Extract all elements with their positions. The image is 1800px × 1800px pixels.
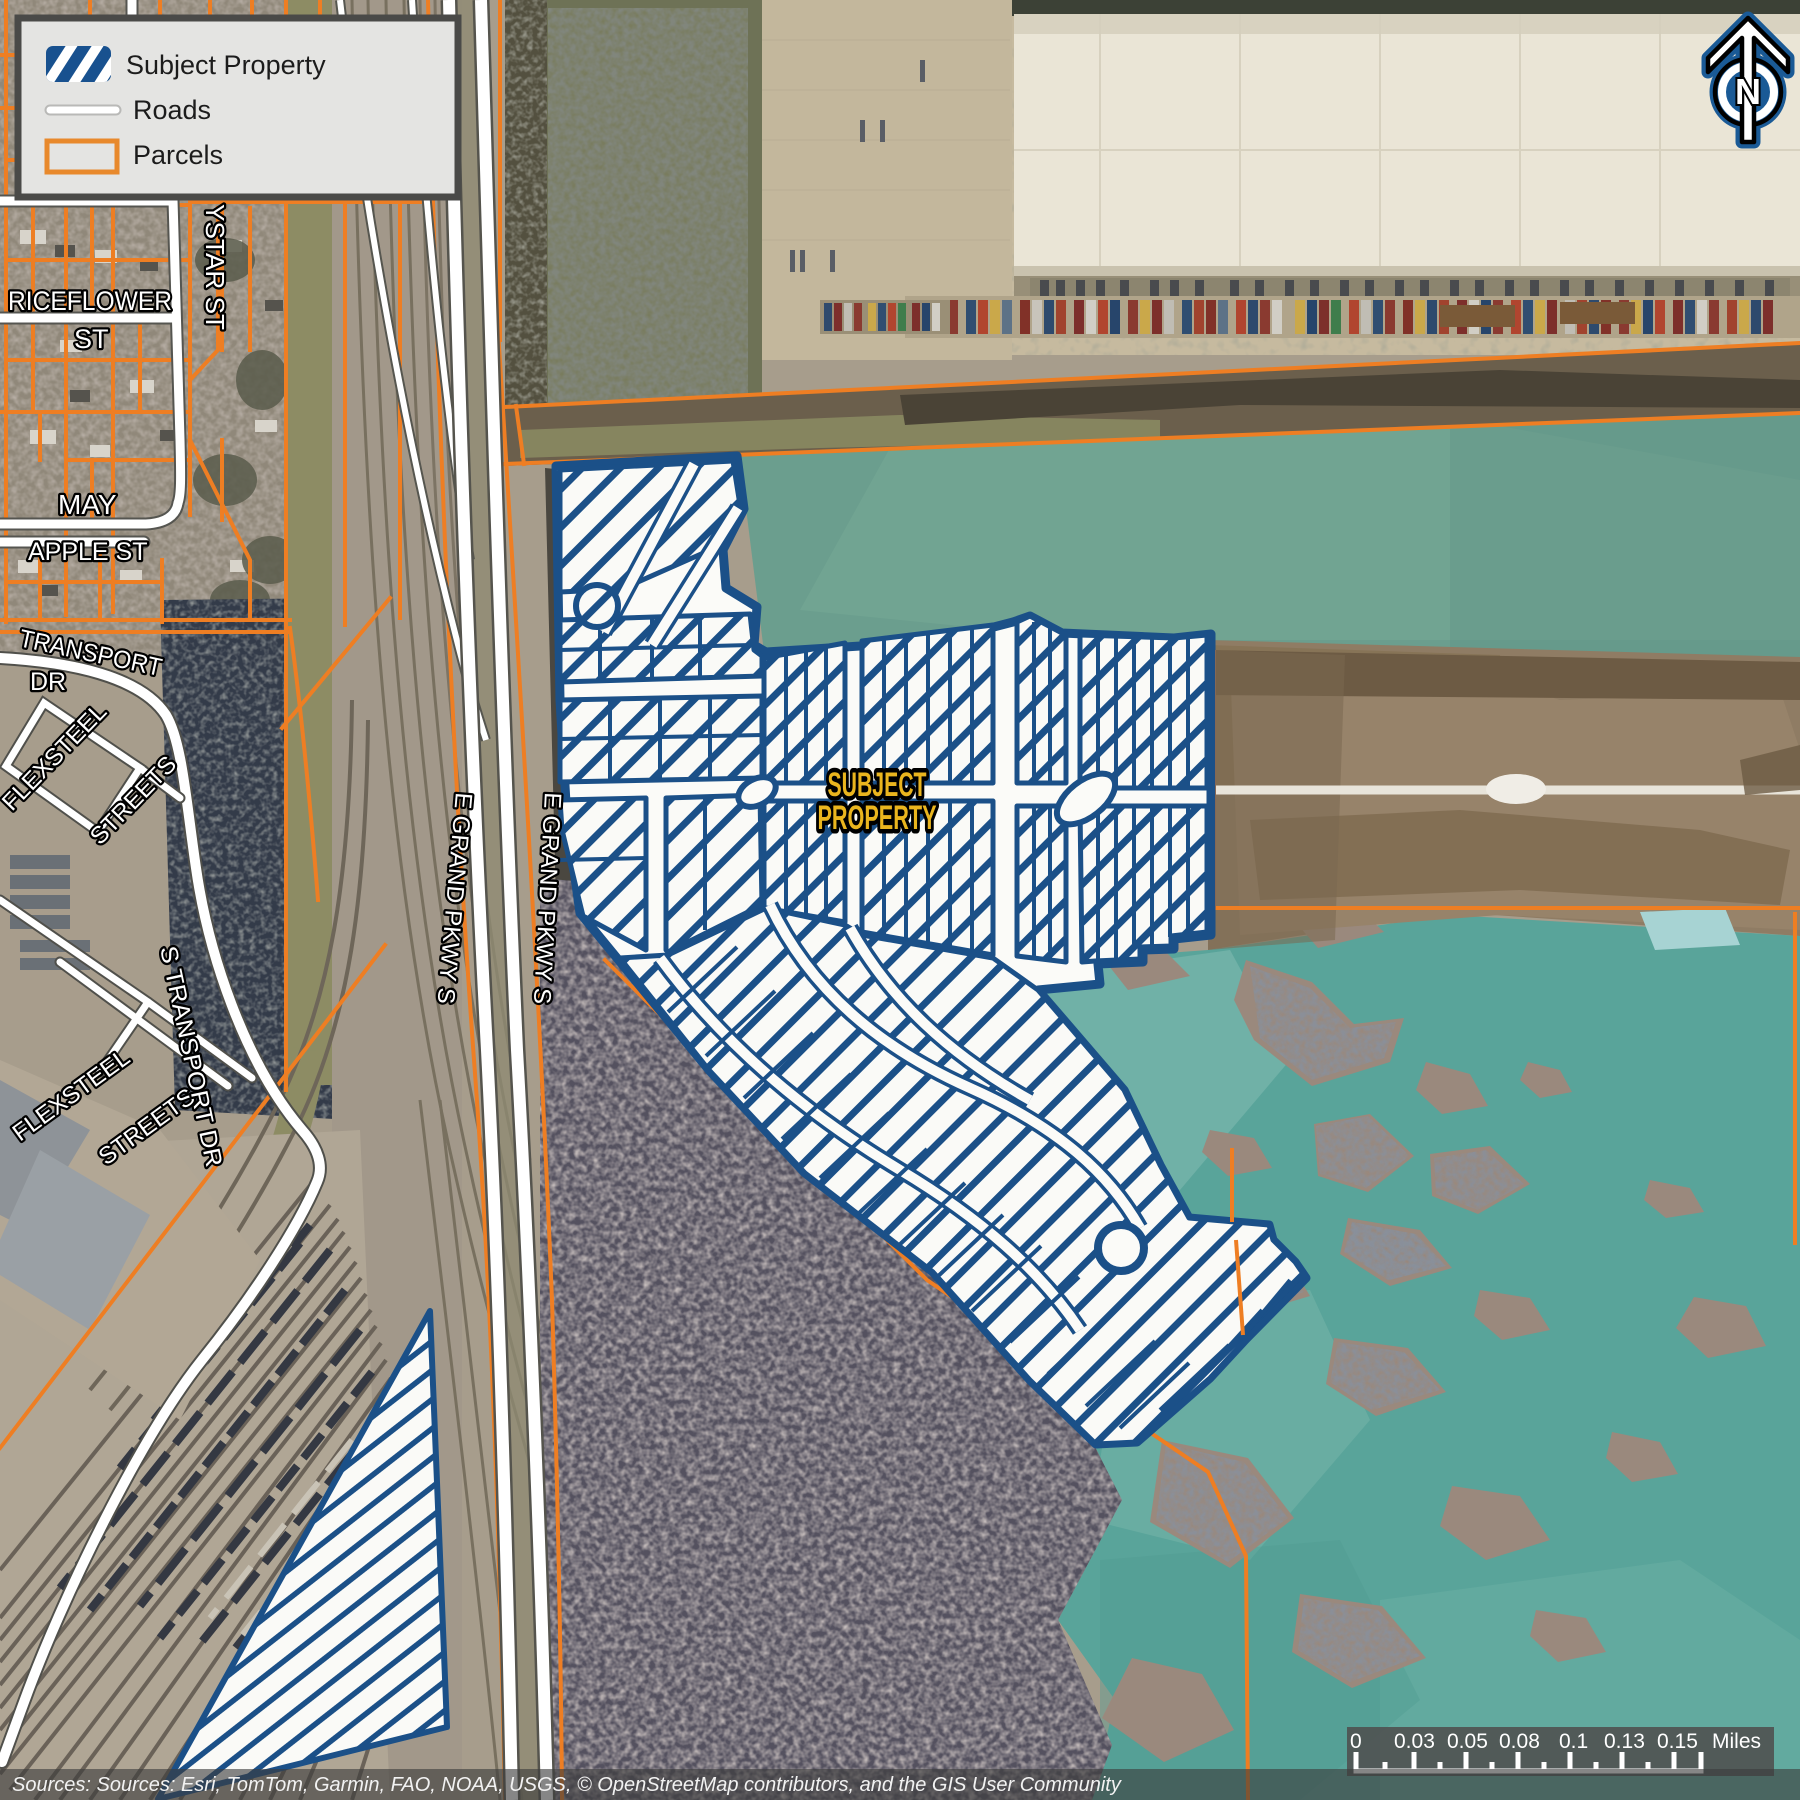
svg-text:0.05: 0.05 [1447, 1730, 1488, 1753]
svg-text:PROPERTY: PROPERTY [818, 799, 937, 837]
svg-text:MAY: MAY [58, 489, 117, 520]
svg-text:YSTAR ST: YSTAR ST [200, 204, 230, 330]
svg-text:RICEFLOWER: RICEFLOWER [8, 286, 172, 316]
svg-text:Roads: Roads [133, 95, 211, 125]
svg-text:Subject Property: Subject Property [126, 50, 326, 80]
svg-text:Miles: Miles [1712, 1730, 1761, 1753]
svg-text:ST: ST [74, 324, 109, 354]
svg-text:N: N [1735, 71, 1761, 112]
svg-text:0.13: 0.13 [1604, 1730, 1645, 1753]
svg-text:APPLE ST: APPLE ST [28, 538, 148, 566]
svg-text:DR: DR [30, 668, 66, 696]
svg-text:0.1: 0.1 [1559, 1730, 1588, 1753]
svg-text:Parcels: Parcels [133, 140, 223, 170]
svg-text:0.03: 0.03 [1394, 1730, 1435, 1753]
svg-text:0.08: 0.08 [1499, 1730, 1540, 1753]
svg-text:Sources: Sources: Esri, TomTom: Sources: Sources: Esri, TomTom, Garmin, … [12, 1774, 1122, 1796]
svg-text:0: 0 [1350, 1730, 1362, 1753]
svg-text:0.15: 0.15 [1657, 1730, 1698, 1753]
